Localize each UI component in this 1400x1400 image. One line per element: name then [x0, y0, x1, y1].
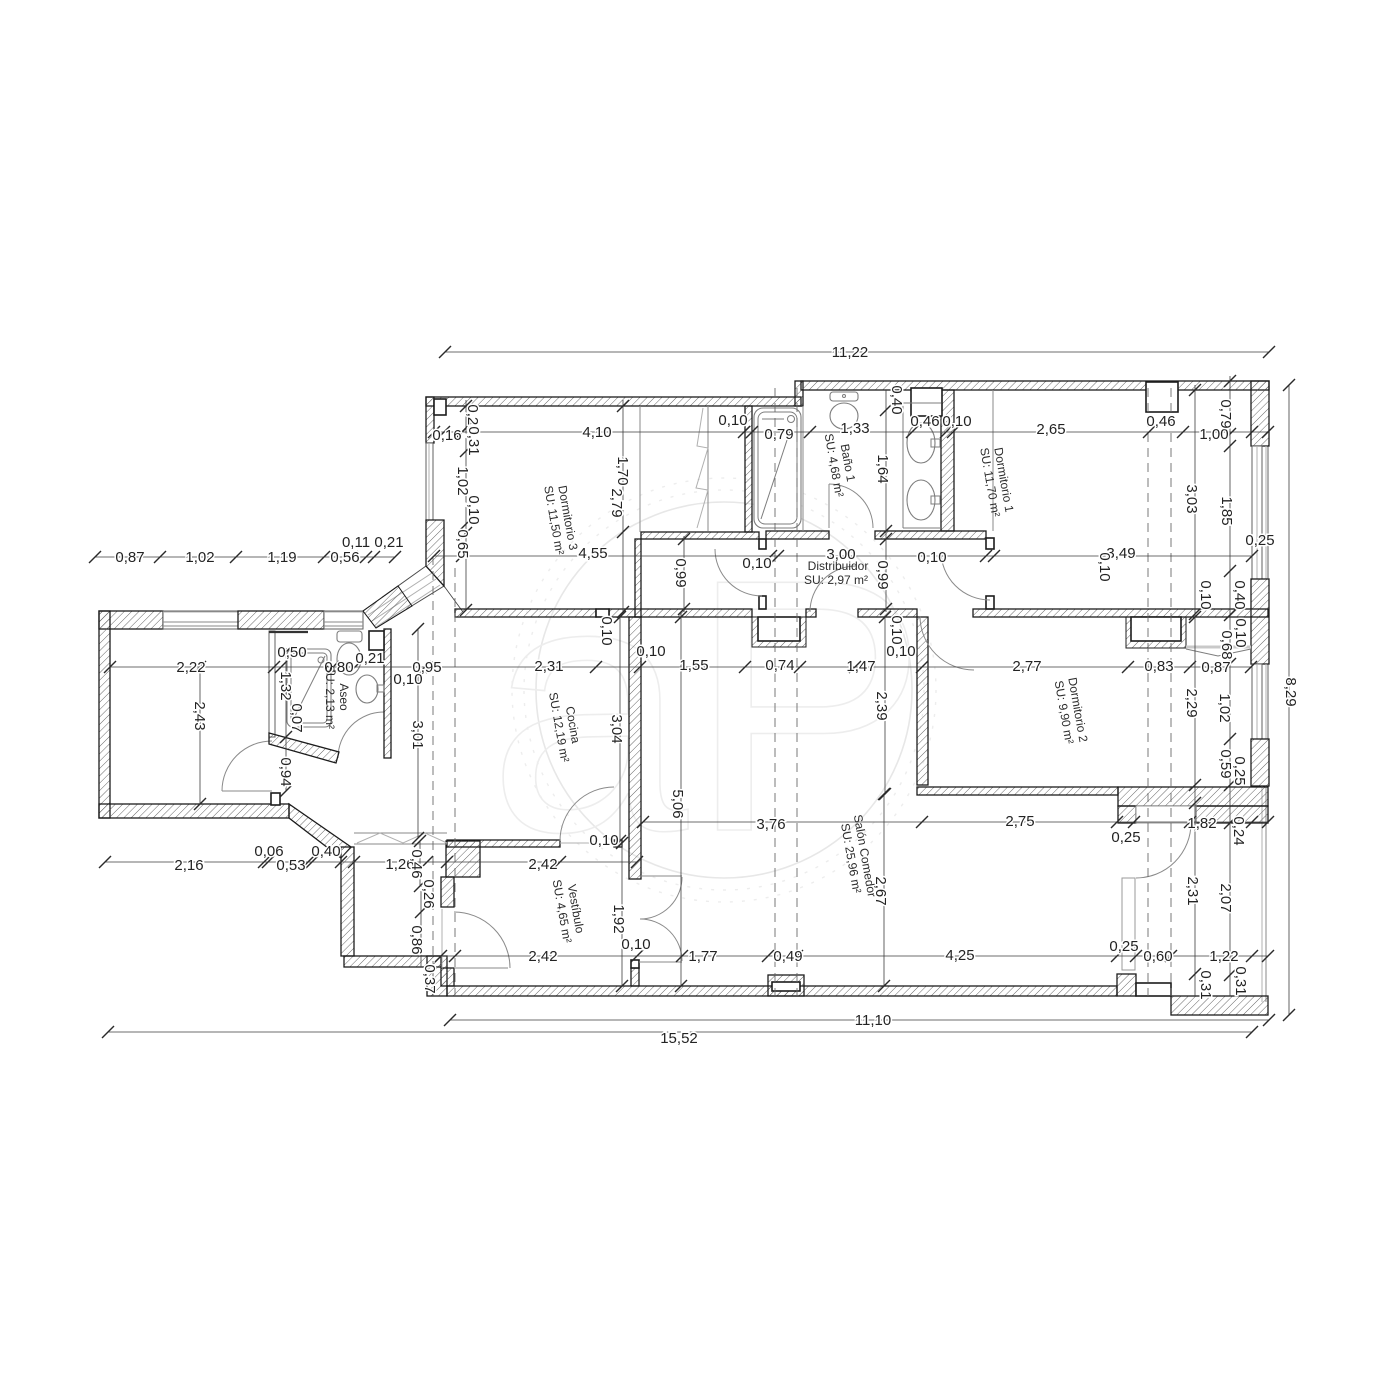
svg-text:2,79: 2,79: [608, 488, 625, 517]
svg-text:2,65: 2,65: [1036, 421, 1065, 438]
svg-text:1,02: 1,02: [1216, 693, 1233, 722]
svg-text:0,37: 0,37: [421, 964, 438, 993]
svg-text:3,01: 3,01: [409, 720, 426, 749]
svg-text:0,56: 0,56: [330, 549, 359, 566]
svg-text:0,10: 0,10: [621, 936, 650, 953]
svg-text:4,25: 4,25: [945, 947, 974, 964]
svg-text:0,74: 0,74: [765, 657, 794, 674]
svg-text:1,47: 1,47: [846, 658, 875, 675]
svg-text:0,10: 0,10: [888, 615, 905, 644]
svg-text:0,40: 0,40: [1231, 580, 1248, 609]
svg-text:1,55: 1,55: [679, 657, 708, 674]
svg-text:1,92: 1,92: [610, 904, 627, 933]
svg-text:2,77: 2,77: [1012, 658, 1041, 675]
svg-text:8,29: 8,29: [1282, 677, 1299, 706]
svg-text:0,10: 0,10: [718, 412, 747, 429]
svg-text:0,99: 0,99: [672, 558, 689, 587]
svg-text:2,42: 2,42: [528, 948, 557, 965]
svg-text:3,76: 3,76: [756, 816, 785, 833]
svg-text:0,11: 0,11: [342, 534, 370, 551]
svg-text:0,40: 0,40: [311, 843, 340, 860]
svg-text:0,50: 0,50: [277, 644, 306, 661]
svg-text:0,87: 0,87: [1201, 659, 1230, 676]
svg-text:0,10: 0,10: [393, 671, 422, 688]
svg-text:0,10: 0,10: [1096, 552, 1113, 581]
svg-text:0,79: 0,79: [1217, 399, 1234, 428]
svg-text:Aseo: Aseo: [337, 683, 351, 711]
svg-text:3,03: 3,03: [1183, 484, 1200, 513]
svg-text:0,31: 0,31: [1232, 966, 1249, 995]
svg-text:2,16: 2,16: [174, 857, 203, 874]
svg-text:0,87: 0,87: [115, 549, 144, 566]
svg-text:SU: 2,13 m²: SU: 2,13 m²: [323, 665, 337, 729]
svg-text:2,42: 2,42: [528, 856, 557, 873]
svg-text:3,04: 3,04: [608, 714, 625, 743]
svg-text:4,10: 4,10: [582, 424, 611, 441]
svg-text:1,85: 1,85: [1218, 496, 1235, 525]
svg-text:0,31: 0,31: [465, 426, 482, 455]
svg-text:0,10: 0,10: [742, 555, 771, 572]
svg-text:0,25: 0,25: [1245, 532, 1274, 549]
svg-text:1,32: 1,32: [277, 671, 294, 700]
svg-text:1,82: 1,82: [1187, 815, 1216, 832]
svg-text:0,10: 0,10: [886, 643, 915, 660]
svg-text:0,25: 0,25: [1109, 938, 1138, 955]
svg-text:0,10: 0,10: [917, 549, 946, 566]
svg-text:1,64: 1,64: [874, 454, 891, 483]
svg-text:0,68: 0,68: [1218, 630, 1235, 659]
svg-text:0,31: 0,31: [1197, 970, 1214, 999]
svg-text:SU: 2,97 m²: SU: 2,97 m²: [804, 573, 868, 587]
svg-text:0,46: 0,46: [910, 413, 939, 430]
svg-text:0,94: 0,94: [277, 757, 294, 786]
svg-text:0,10: 0,10: [636, 643, 665, 660]
svg-text:0,83: 0,83: [1144, 658, 1173, 675]
svg-text:Distribuidor: Distribuidor: [808, 559, 869, 573]
svg-text:0,46: 0,46: [408, 849, 425, 878]
svg-text:0,26: 0,26: [420, 879, 437, 908]
svg-text:1,02: 1,02: [185, 549, 214, 566]
svg-text:1,19: 1,19: [267, 549, 296, 566]
svg-text:2,39: 2,39: [873, 691, 890, 720]
svg-text:1,77: 1,77: [688, 948, 717, 965]
svg-text:0,53: 0,53: [276, 857, 305, 874]
svg-text:2,43: 2,43: [191, 701, 208, 730]
svg-text:5,06: 5,06: [669, 789, 686, 818]
svg-text:0,86: 0,86: [408, 925, 425, 954]
svg-text:0,25: 0,25: [1111, 829, 1140, 846]
svg-text:0,25: 0,25: [1231, 756, 1248, 785]
svg-text:0,65: 0,65: [454, 529, 471, 558]
svg-text:0,10: 0,10: [1197, 580, 1214, 609]
svg-text:2,29: 2,29: [1183, 688, 1200, 717]
svg-text:0,79: 0,79: [764, 426, 793, 443]
svg-text:0,10: 0,10: [942, 413, 971, 430]
svg-text:0,46: 0,46: [1146, 413, 1175, 430]
svg-text:1,70: 1,70: [614, 456, 631, 485]
svg-text:2,31: 2,31: [534, 658, 563, 675]
svg-text:0,07: 0,07: [288, 703, 305, 732]
svg-text:0,24: 0,24: [1230, 816, 1247, 845]
svg-text:4,55: 4,55: [578, 545, 607, 562]
svg-text:0,60: 0,60: [1143, 948, 1172, 965]
svg-text:1,33: 1,33: [840, 420, 869, 437]
svg-text:2,75: 2,75: [1005, 813, 1034, 830]
svg-text:1,22: 1,22: [1209, 948, 1238, 965]
svg-text:0,10: 0,10: [465, 495, 482, 524]
svg-text:0,10: 0,10: [589, 832, 618, 849]
svg-text:2,31: 2,31: [1184, 876, 1201, 905]
svg-text:1,02: 1,02: [454, 466, 471, 495]
svg-text:0,21: 0,21: [374, 534, 403, 551]
svg-text:11,10: 11,10: [855, 1012, 891, 1029]
svg-text:0,10: 0,10: [598, 616, 615, 645]
svg-text:15,52: 15,52: [660, 1030, 698, 1047]
svg-text:11,22: 11,22: [832, 344, 868, 361]
svg-text:2,07: 2,07: [1217, 883, 1234, 912]
svg-text:2,22: 2,22: [176, 659, 205, 676]
svg-text:0,40: 0,40: [888, 385, 905, 414]
svg-text:0,49: 0,49: [773, 948, 802, 965]
svg-text:0,21: 0,21: [355, 650, 384, 667]
svg-text:0,99: 0,99: [874, 560, 891, 589]
svg-text:0,16: 0,16: [432, 427, 461, 444]
